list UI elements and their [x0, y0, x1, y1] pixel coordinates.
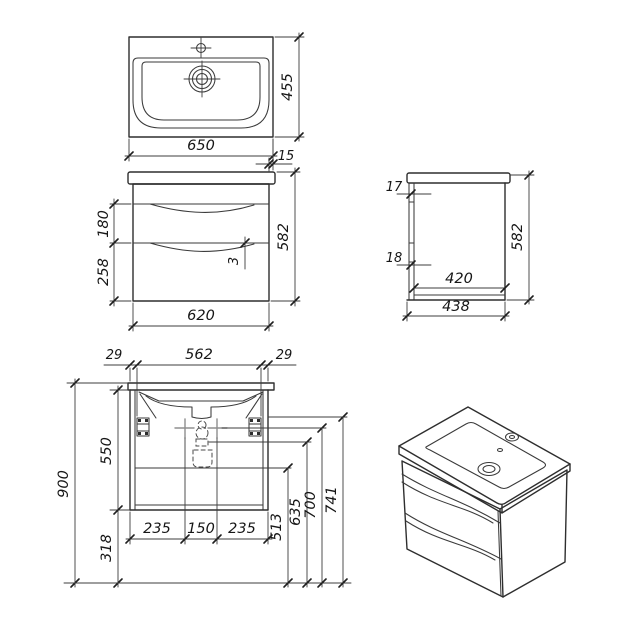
mounting-view: 29 562 29 900 550 318: [56, 347, 351, 587]
faucet-hole-icon: [191, 38, 211, 58]
dim-label-318: 318: [99, 534, 115, 562]
drain-perspective-icon: [478, 463, 500, 476]
dim-overhang: 15: [256, 139, 294, 171]
perspective-view: [399, 407, 570, 597]
dim-label-15: 15: [278, 149, 295, 164]
height-leader-lines: 513 635 700 741: [209, 413, 347, 587]
fixing-point-right-icon: [208, 419, 227, 438]
dim-front-height: 582: [271, 168, 300, 306]
dim-label-700: 700: [303, 491, 319, 519]
dim-rail-bottom: 18: [386, 251, 431, 269]
dim-bracket-row: 29 562 29: [104, 347, 296, 416]
right-wall-bracket: [249, 418, 261, 436]
left-wall-bracket: [137, 418, 149, 436]
dim-label-420: 420: [445, 271, 473, 287]
front-view: 180 258 582 620 3: [96, 168, 300, 331]
countertop: [128, 172, 275, 184]
drawer1-wave-perspective: [402, 482, 493, 523]
dim-cabinet-height: 550 318: [99, 386, 130, 587]
drawer2-wave-perspective: [406, 521, 495, 560]
dim-label-635: 635: [288, 498, 304, 526]
dim-label-3: 3: [227, 257, 242, 265]
dim-inner-depth: 420: [410, 271, 509, 292]
drawing-sheet: 455 650 15: [0, 0, 642, 642]
dim-label-235-left: 235: [143, 521, 171, 537]
dim-label-180: 180: [96, 210, 112, 238]
dim-side-height: 582: [507, 171, 534, 304]
dim-label-562: 562: [185, 347, 213, 363]
countertop-top-face: [399, 407, 570, 504]
dim-label-650: 650: [187, 138, 215, 154]
dim-label-455: 455: [280, 73, 296, 101]
dim-label-29-right: 29: [276, 348, 293, 363]
dim-label-150: 150: [187, 521, 215, 537]
countertop-side: [407, 173, 510, 183]
vanity-dimension-drawing: 455 650 15: [0, 0, 642, 642]
side-view: 17 18 420 438 582: [386, 171, 534, 321]
drain-icon: [184, 61, 220, 97]
drawer1-handle-wave: [150, 204, 254, 212]
top-view: 455 650 15: [125, 33, 304, 171]
dim-label-235-right: 235: [228, 521, 256, 537]
dim-depth: 438: [403, 299, 509, 321]
dim-label-582-front: 582: [276, 223, 292, 251]
dim-label-258: 258: [96, 258, 112, 286]
overflow-hole-icon: [498, 449, 503, 452]
drawer2-handle-wave: [150, 243, 254, 251]
dim-front-left: 180 258: [96, 199, 131, 306]
basin-silhouette: [139, 392, 263, 419]
drawer1-seam-perspective: [402, 474, 500, 523]
dim-label-29-left: 29: [106, 348, 123, 363]
dim-label-900: 900: [56, 470, 72, 498]
dim-drawer-gap: 3: [227, 237, 249, 269]
faucet-hole-perspective-icon: [506, 433, 519, 441]
cabinet-right-face: [500, 470, 567, 597]
dim-top-width: 650: [125, 138, 277, 161]
dim-label-550: 550: [99, 437, 115, 465]
dim-label-620: 620: [187, 308, 215, 324]
dim-label-438: 438: [442, 299, 470, 315]
dim-label-18: 18: [386, 251, 403, 266]
countertop-mounting: [128, 383, 274, 390]
dim-fixing-row: 235 150 235: [126, 438, 272, 544]
fixing-point-left-icon: [175, 419, 194, 438]
basin-rim-perspective: [426, 423, 546, 489]
dim-label-741: 741: [324, 486, 340, 514]
dim-top-depth: 455: [275, 33, 304, 141]
dim-front-width: 620: [129, 303, 273, 331]
dim-total-height: 900: [56, 379, 128, 587]
dim-label-17: 17: [386, 180, 403, 195]
basin-bowl-inner: [142, 62, 260, 120]
dim-label-582-side: 582: [510, 223, 526, 251]
floor-line: [64, 579, 351, 587]
